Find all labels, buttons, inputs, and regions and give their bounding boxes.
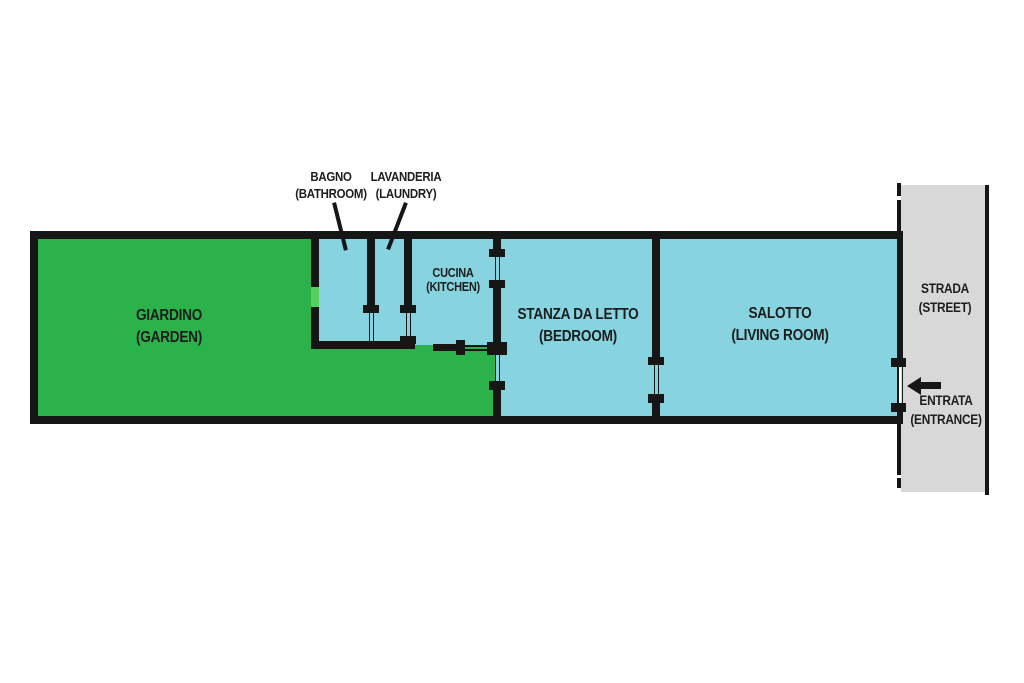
room-name: GIARDINO [136,305,202,327]
label-living-room: SALOTTO (LIVING ROOM) [731,303,828,347]
kitchen-garden-door-post [456,340,465,355]
garden-door-opening [311,287,319,307]
street-left-edge-dash-top [897,183,901,196]
street-right-edge-line [985,185,989,495]
street-left-edge-line-top [897,200,901,232]
kitchen-bedroom-door-opening-line [495,257,497,281]
wall-outer-top [30,231,903,239]
garden-bedroom-door-post [489,381,505,390]
bedroom-living-door-post [648,394,664,403]
room-name-en: (BATHROOM) [295,185,367,202]
entrance-door-post-top [891,358,906,367]
street-left-edge-line-bottom [897,424,901,475]
wall-kitchen-bedroom-lower [493,390,501,416]
room-name: ENTRATA [910,391,981,410]
laundry-door-foot [400,336,416,344]
bedroom-living-door-opening-line [654,365,656,395]
street-area [901,185,987,492]
laundry-door-post [400,305,416,313]
entrance-arrow-shaft [920,382,941,389]
wall-outer-left [30,231,38,424]
room-name: LAVANDERIA [371,168,442,185]
garden-bedroom-door-opening-line [495,355,497,382]
wall-bathroom-laundry [367,239,375,306]
wall-laundry-kitchen [404,239,412,306]
label-kitchen: CUCINA (KITCHEN) [426,266,480,294]
entrance-door-post-bottom [891,403,906,412]
wall-bedroom-living-upper [652,239,660,358]
wall-bedroom-living-lower [652,403,660,416]
wall-outer-right-upper [897,231,903,360]
room-name: STANZA DA LETTO [517,304,638,326]
kitchen-bedroom-door-post [489,249,505,257]
bedroom-living-door-post [648,357,664,365]
bedroom-living-door-opening-line [658,365,660,395]
street-left-edge-dash-bottom [897,478,901,488]
bathroom-door-opening-line [373,313,375,341]
label-laundry: LAVANDERIA (LAUNDRY) [371,168,442,202]
wall-outer-bottom [30,416,903,424]
wall-garden-bathroom-upper [311,239,319,287]
room-name-en: (KITCHEN) [426,280,480,294]
label-garden: GIARDINO (GARDEN) [136,305,202,349]
kitchen-bedroom-door-opening-line [499,257,501,281]
room-name-en: (BEDROOM) [517,326,638,348]
room-name: CUCINA [426,266,480,280]
kitchen-garden-door-opening-line [465,345,493,347]
room-name: STRADA [919,279,972,298]
label-entrance: ENTRATA (ENTRANCE) [910,391,981,429]
kitchen-garden-door-opening-line [465,349,493,351]
garden-lower-strip [311,345,496,416]
floor-plan: GIARDINO (GARDEN) BAGNO (BATHROOM) LAVAN… [0,0,1024,683]
label-bathroom: BAGNO (BATHROOM) [295,168,367,202]
laundry-door-opening-line [410,313,412,338]
room-name-en: (LIVING ROOM) [731,325,828,347]
room-name-en: (LAUNDRY) [371,185,442,202]
entrance-door-opening-line [902,367,904,403]
room-name-en: (STREET) [919,298,972,317]
label-street: STRADA (STREET) [919,279,972,317]
kitchen-bedroom-door-post [489,280,505,288]
wall-kitchen-bedroom-mid [493,288,501,343]
room-name: SALOTTO [731,303,828,325]
garden-bedroom-door-opening-line [499,355,501,382]
label-bedroom: STANZA DA LETTO (BEDROOM) [517,304,638,348]
wall-outer-right-lower [897,412,903,424]
room-name-en: (ENTRANCE) [910,410,981,429]
bathroom-door-post [363,305,379,313]
room-name: BAGNO [295,168,367,185]
room-name-en: (GARDEN) [136,327,202,349]
entrance-door-opening-line [897,367,899,403]
laundry-door-opening-line [406,313,408,338]
bathroom-door-opening-line [369,313,371,341]
